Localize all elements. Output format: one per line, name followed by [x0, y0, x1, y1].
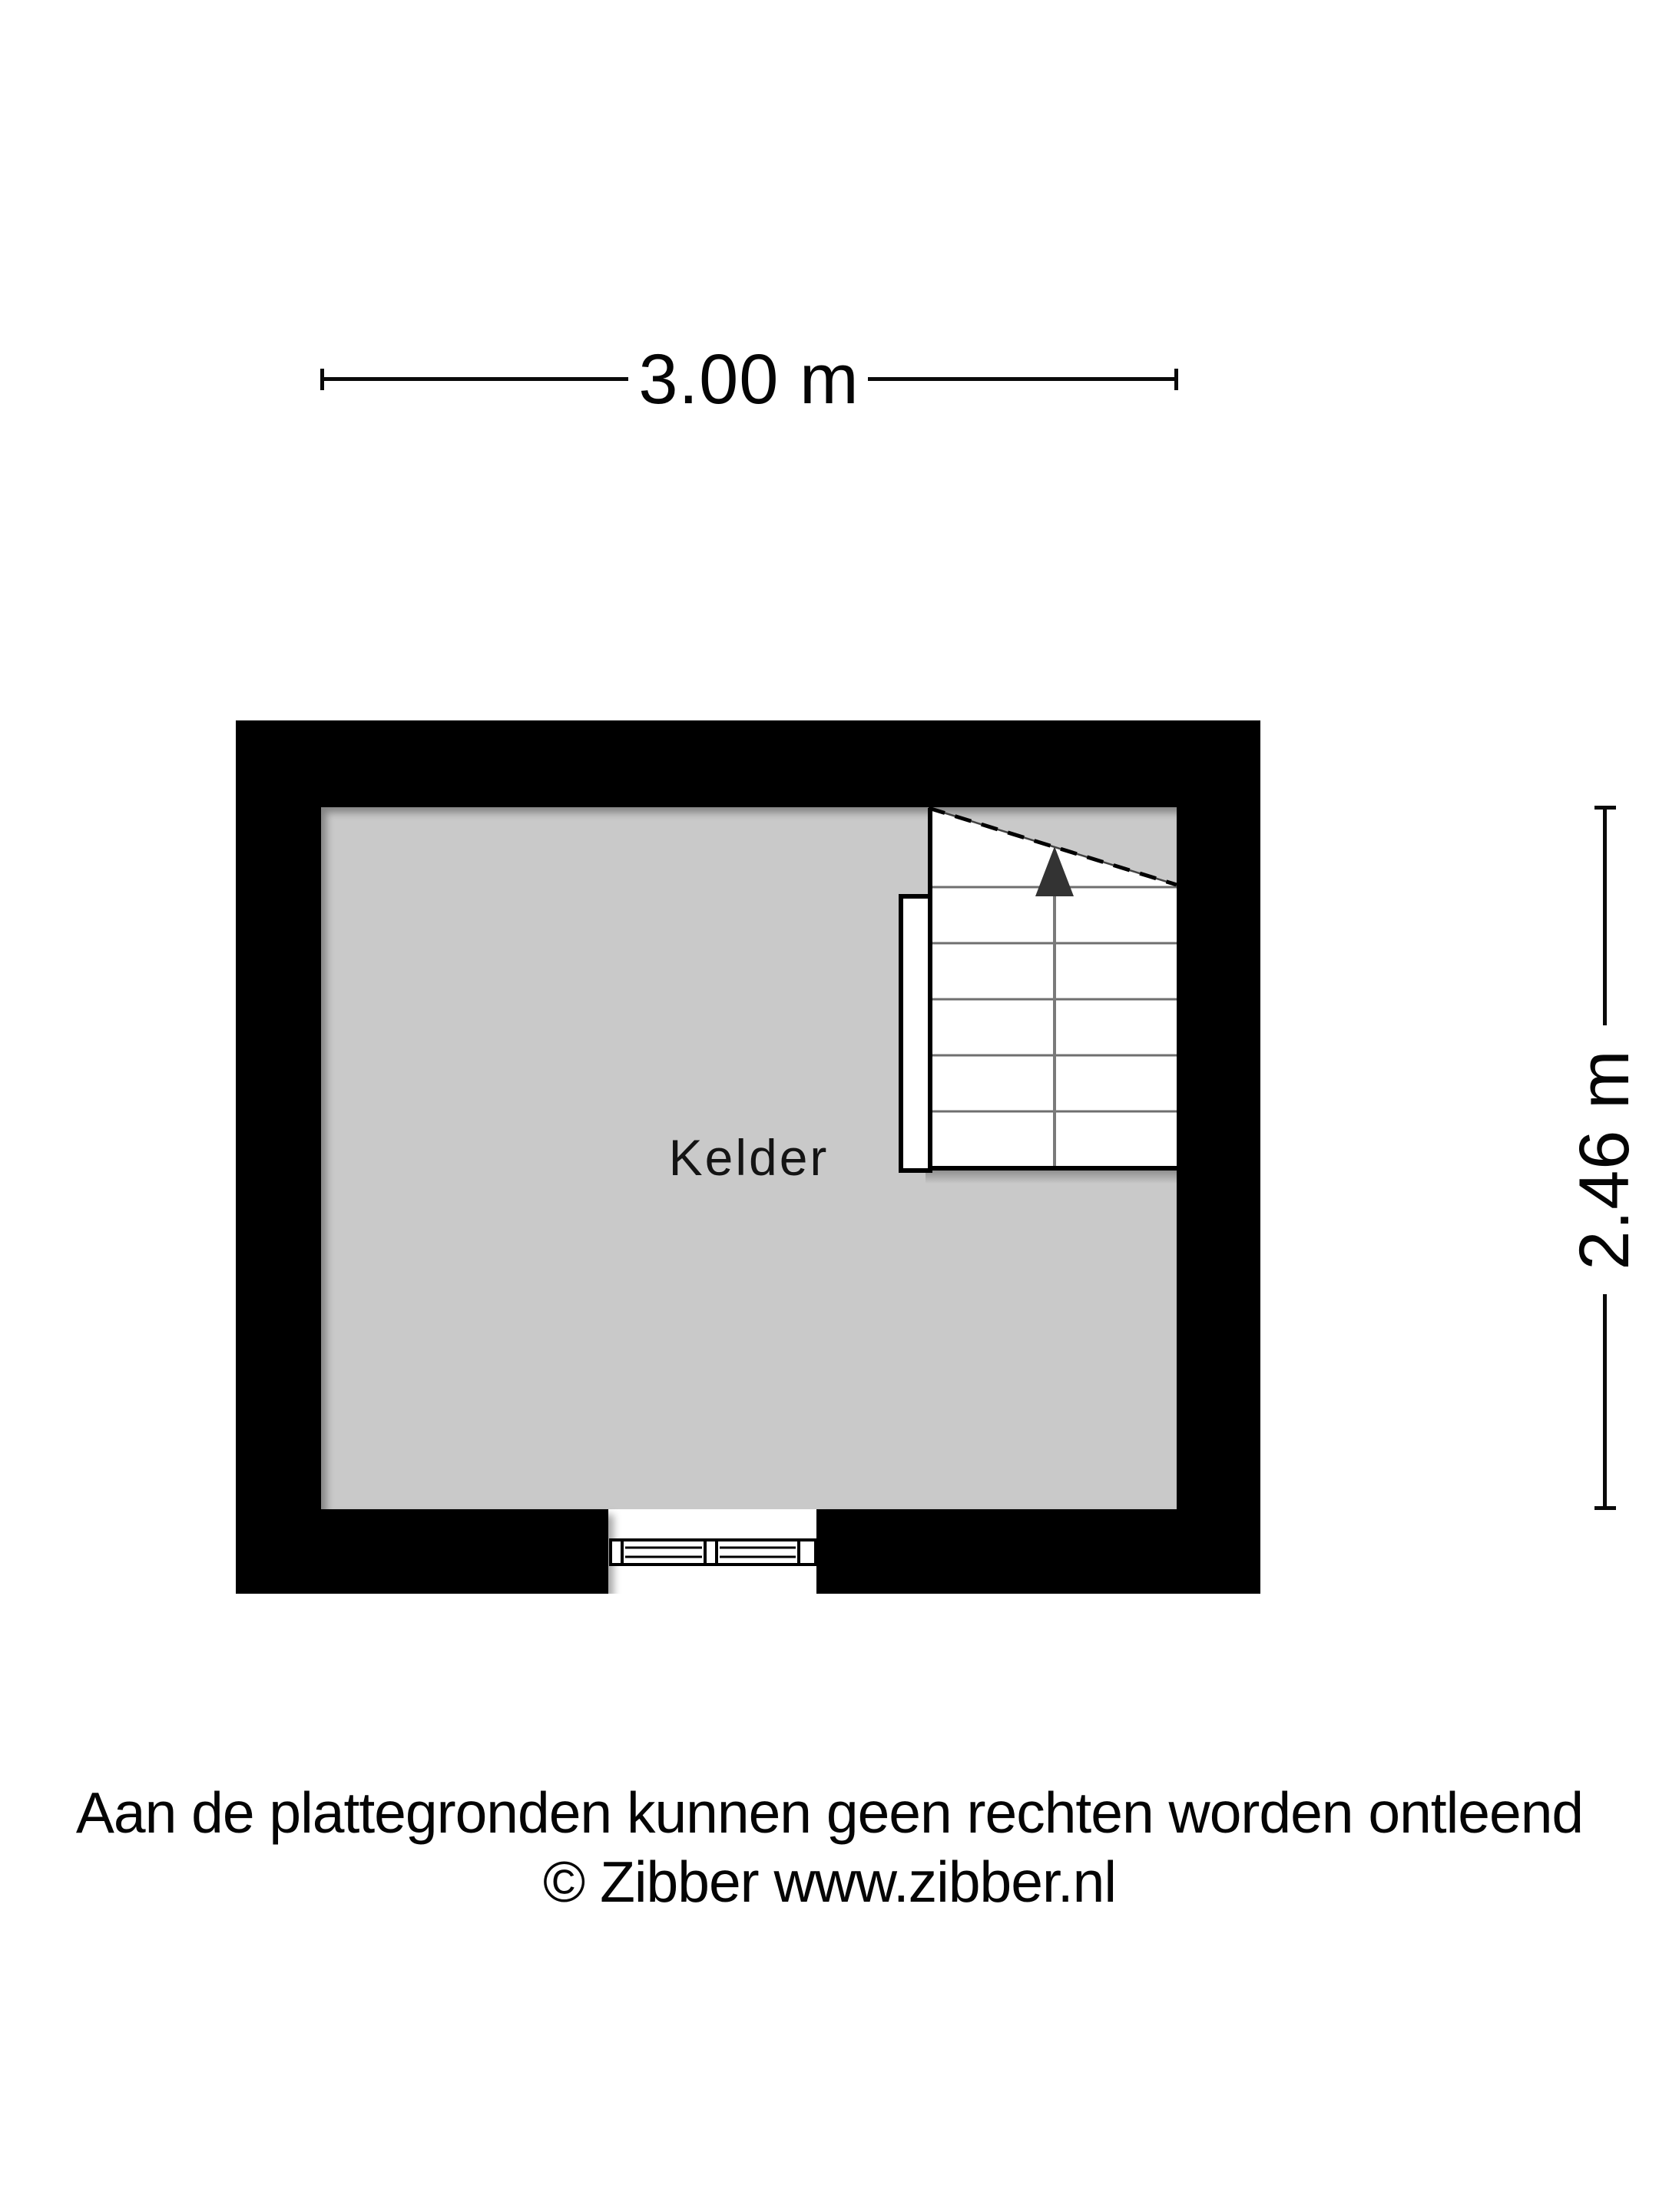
- staircase-shadow: [926, 1170, 1179, 1184]
- staircase-handrail: [901, 896, 930, 1171]
- width-dimension-right-tick: [1174, 369, 1178, 390]
- height-dimension-label: 2.46 m: [1568, 991, 1641, 1329]
- width-dimension-line-right: [868, 377, 1177, 381]
- footer-credit: © Zibber www.zibber.nl: [0, 1848, 1659, 1916]
- window-frame: [611, 1540, 816, 1565]
- height-dimension-bottom-tick: [1594, 1506, 1616, 1510]
- height-dimension-line-lower: [1603, 1294, 1607, 1509]
- width-dimension-label: 3.00 m: [580, 343, 918, 416]
- footer-disclaimer: Aan de plattegronden kunnen geen rechten…: [0, 1779, 1659, 1846]
- window-symbol: [611, 1540, 816, 1565]
- room-label: Kelder: [595, 1128, 902, 1187]
- floorplan-page: 3.00 m: [0, 0, 1659, 2212]
